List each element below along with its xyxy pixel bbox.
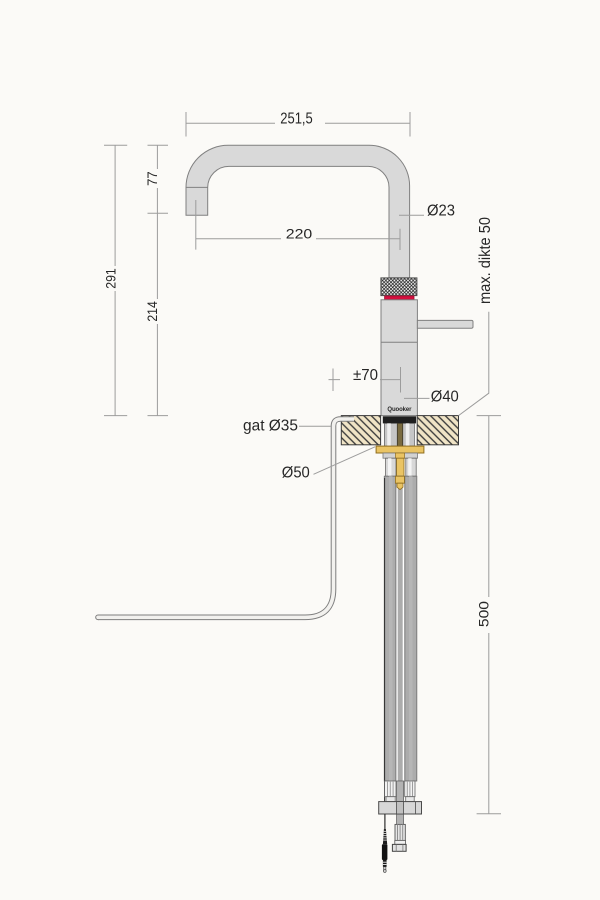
svg-text:220: 220 (286, 225, 313, 241)
svg-text:291: 291 (102, 268, 118, 289)
svg-text:Quooker: Quooker (387, 407, 412, 413)
svg-text:±70: ±70 (353, 367, 378, 384)
svg-text:gat Ø35: gat Ø35 (243, 417, 298, 434)
svg-text:251,5: 251,5 (280, 110, 313, 127)
svg-text:Ø23: Ø23 (427, 202, 455, 219)
svg-text:500: 500 (475, 601, 491, 627)
svg-text:214: 214 (144, 301, 160, 322)
svg-text:Ø40: Ø40 (431, 389, 459, 406)
svg-text:Ø50: Ø50 (282, 465, 310, 482)
svg-text:77: 77 (144, 171, 160, 186)
svg-text:max. dikte 50: max. dikte 50 (477, 217, 494, 304)
